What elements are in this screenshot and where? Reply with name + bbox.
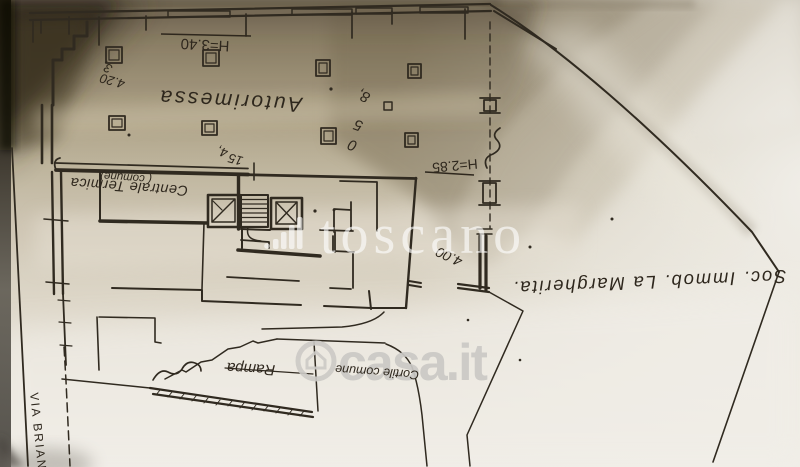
svg-text:H=3.40: H=3.40 bbox=[180, 35, 230, 55]
svg-text:casa.it: casa.it bbox=[338, 334, 488, 392]
svg-text:toscano: toscano bbox=[320, 204, 526, 266]
svg-text:Rampa: Rampa bbox=[226, 359, 275, 379]
